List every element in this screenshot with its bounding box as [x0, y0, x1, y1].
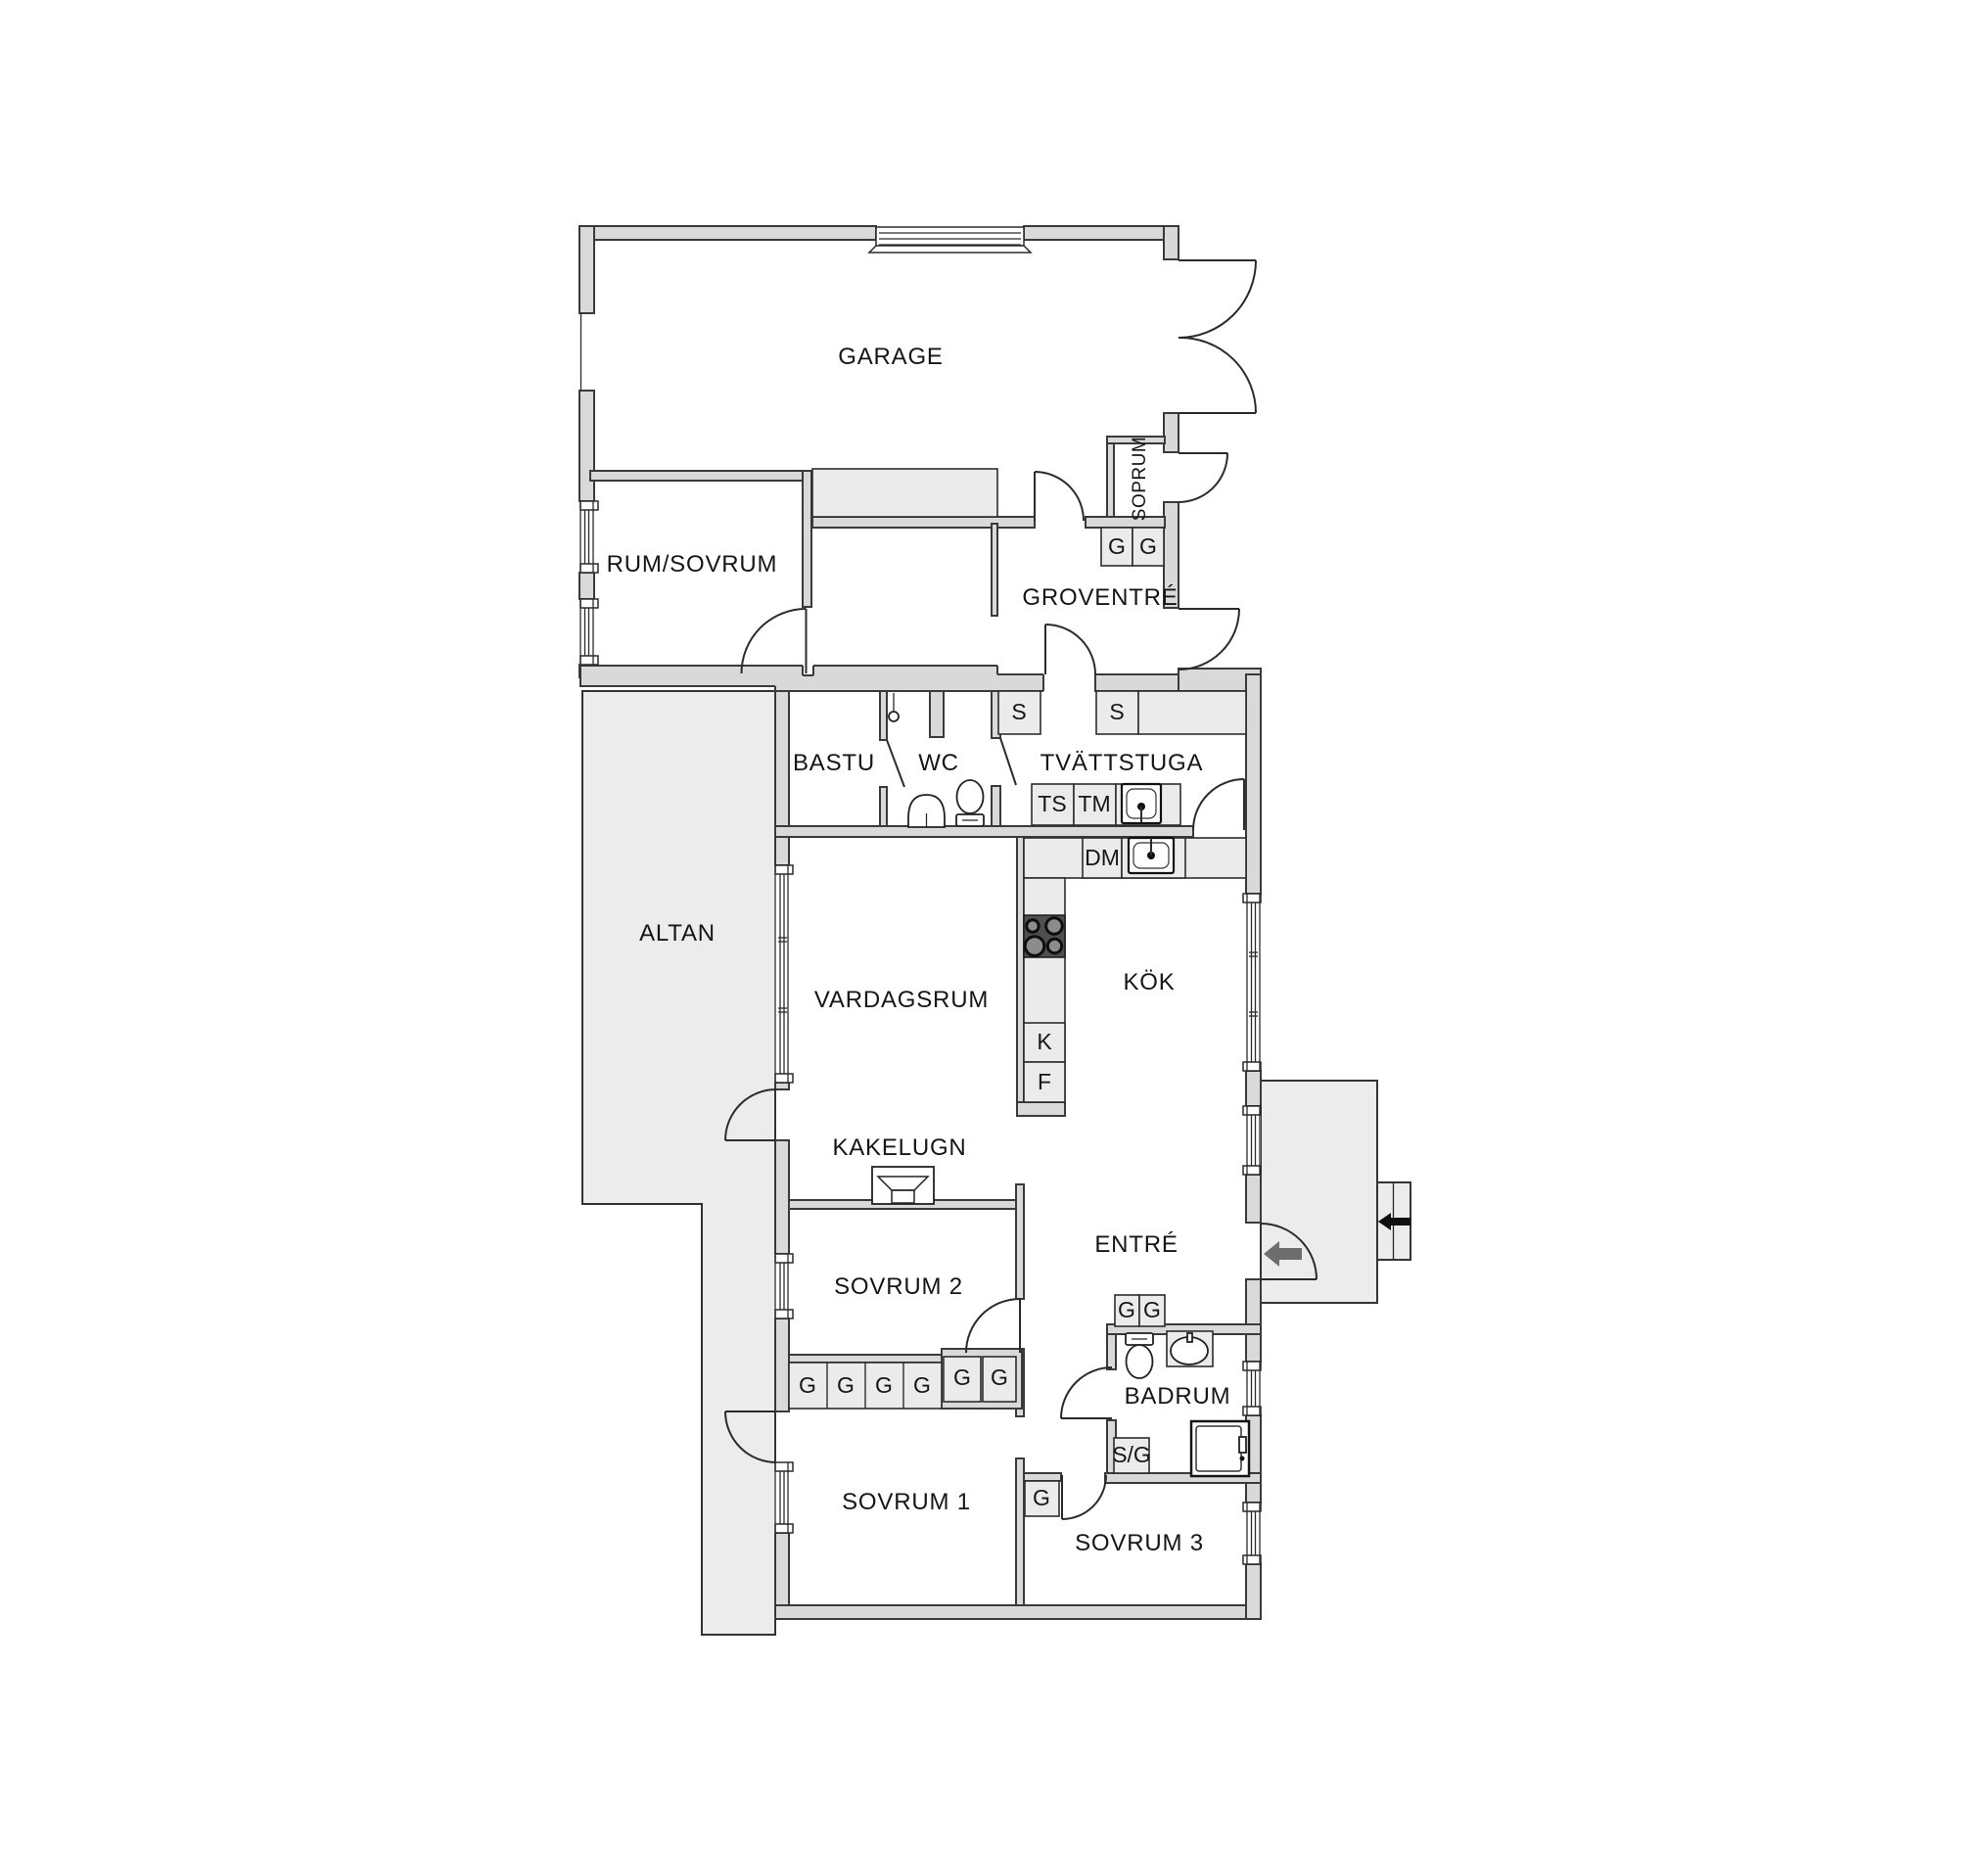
svg-text:BADRUM: BADRUM — [1125, 1383, 1231, 1410]
svg-text:F: F — [1038, 1069, 1051, 1094]
svg-text:DM: DM — [1085, 845, 1120, 870]
svg-text:BASTU: BASTU — [793, 750, 875, 776]
svg-text:SOVRUM 1: SOVRUM 1 — [842, 1489, 971, 1515]
svg-text:G: G — [1118, 1297, 1135, 1322]
svg-text:ENTRÉ: ENTRÉ — [1094, 1231, 1178, 1258]
svg-text:KÖK: KÖK — [1123, 969, 1175, 995]
svg-text:G: G — [1108, 533, 1126, 559]
svg-text:G: G — [953, 1364, 971, 1390]
svg-text:KAKELUGN: KAKELUGN — [832, 1134, 966, 1161]
svg-text:TM: TM — [1078, 791, 1110, 816]
svg-text:G: G — [875, 1372, 893, 1398]
svg-text:WC: WC — [918, 750, 959, 776]
svg-text:G: G — [837, 1372, 855, 1398]
svg-text:SOVRUM 3: SOVRUM 3 — [1075, 1530, 1204, 1556]
svg-text:VARDAGSRUM: VARDAGSRUM — [814, 987, 989, 1013]
svg-text:S: S — [1011, 699, 1026, 724]
svg-text:RUM/SOVRUM: RUM/SOVRUM — [607, 551, 778, 578]
svg-text:G: G — [1139, 533, 1157, 559]
svg-text:S/G: S/G — [1112, 1442, 1151, 1467]
svg-text:SOVRUM 2: SOVRUM 2 — [834, 1273, 963, 1300]
svg-text:G: G — [991, 1364, 1008, 1390]
svg-text:K: K — [1037, 1029, 1052, 1054]
svg-text:GROVENTRÉ: GROVENTRÉ — [1022, 584, 1178, 611]
svg-text:ALTAN: ALTAN — [639, 920, 716, 947]
svg-text:TVÄTTSTUGA: TVÄTTSTUGA — [1040, 750, 1204, 776]
svg-text:G: G — [913, 1372, 931, 1398]
svg-text:SOPRUM: SOPRUM — [1130, 437, 1150, 521]
svg-text:G: G — [1033, 1485, 1050, 1510]
svg-text:G: G — [1143, 1297, 1161, 1322]
svg-text:GARAGE: GARAGE — [838, 344, 944, 370]
svg-text:G: G — [799, 1372, 816, 1398]
svg-text:S: S — [1109, 699, 1124, 724]
svg-text:TS: TS — [1038, 791, 1066, 816]
